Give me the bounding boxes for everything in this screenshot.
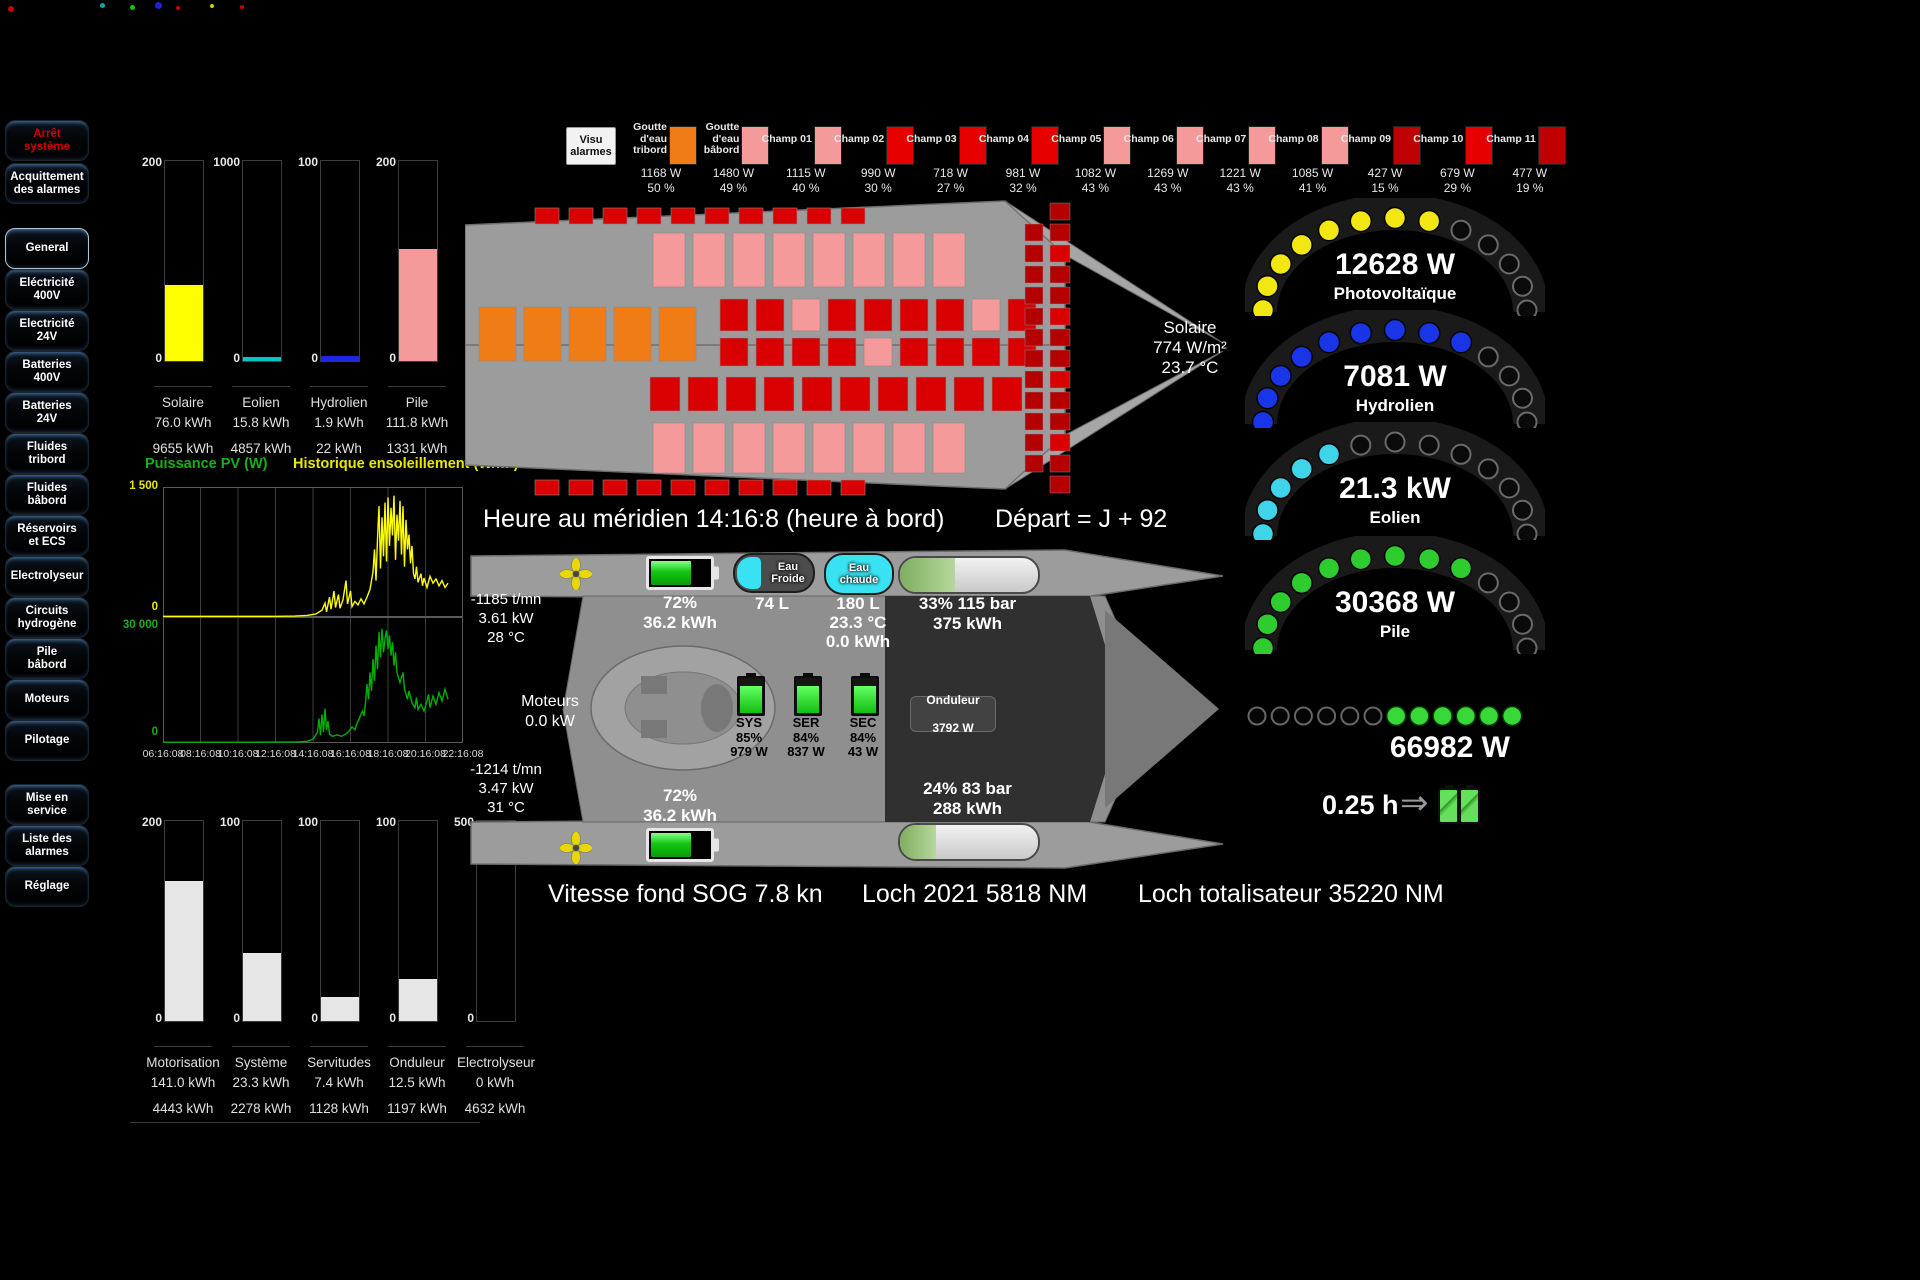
sidebar-item-electricite-400v[interactable]: Eléctricité 400V xyxy=(5,269,89,310)
bar-day-value: 76.0 kWh xyxy=(145,415,221,430)
h2-bottom-energy: 288 kWh xyxy=(905,799,1030,819)
bar-zero-label: 0 xyxy=(454,1011,474,1025)
bar-zero-label: 0 xyxy=(142,1011,162,1025)
dc-battery-text-ser: SER 84% 837 W xyxy=(776,716,836,760)
pv-field-label: Champ 02 xyxy=(824,134,884,146)
cold-water-tank: Eau Froide xyxy=(733,553,815,593)
loch-text: Loch 2021 5818 NM xyxy=(862,880,1087,909)
pv-field-color-swatch xyxy=(814,126,842,165)
solaire-irradiance: 774 W/m² xyxy=(1120,338,1260,358)
pv-field-pct: 43 % xyxy=(1198,181,1282,195)
total-power-value: 66982 W xyxy=(1360,731,1510,765)
dc-battery-text-sys: SYS 85% 979 W xyxy=(719,716,779,760)
motor-top-power: 3.61 kW xyxy=(470,609,542,628)
pv-ymin-label: 0 xyxy=(138,726,158,738)
bar-name-label: Hydrolien xyxy=(301,395,377,410)
bar-fill-système xyxy=(243,953,281,1021)
pv-field-pct: 30 % xyxy=(836,181,920,195)
pv-field-pct: 27 % xyxy=(909,181,993,195)
dc-battery-sys xyxy=(737,676,765,716)
h2-top-energy: 375 kWh xyxy=(905,614,1030,634)
screen-artifact xyxy=(130,5,135,10)
pv-field-watts: 1168 W xyxy=(619,166,703,180)
sidebar-item-circuits-hydrogene[interactable]: Circuits hydrogène xyxy=(5,597,89,638)
pv-field-watts: 1221 W xyxy=(1198,166,1282,180)
pv-field-pct: 19 % xyxy=(1488,181,1572,195)
sun-irradiance-line-chart xyxy=(163,487,463,617)
pv-field-color-swatch xyxy=(1465,126,1493,165)
bar-day-value: 12.5 kWh xyxy=(379,1075,455,1090)
moteurs-power: 0.0 kW xyxy=(510,712,590,732)
pv-field-pct: 40 % xyxy=(764,181,848,195)
pv-field-label: Champ 01 xyxy=(752,134,812,146)
bar-name-label: Système xyxy=(223,1055,299,1070)
charge-battery-icon xyxy=(1438,788,1459,824)
bar-motorisation xyxy=(164,820,204,1022)
gauge-label-photovoltaique: Photovoltaïque xyxy=(1245,284,1545,304)
bar-zero-label: 0 xyxy=(298,1011,318,1025)
pv-field-label: Goutte d'eau tribord xyxy=(607,122,667,157)
pv-field-watts: 990 W xyxy=(836,166,920,180)
sidebar-item-acquittement-alarmes[interactable]: Acquittement des alarmes xyxy=(5,163,89,204)
sidebar-item-batteries-24v[interactable]: Batteries 24V xyxy=(5,392,89,433)
loch-total-text: Loch totalisateur 35220 NM xyxy=(1138,880,1444,909)
total-power-segments xyxy=(1245,702,1527,730)
bar-scale-label: 100 xyxy=(284,155,318,169)
battery-bottom-pct: 72% xyxy=(640,786,720,806)
cold-water-volume: 74 L xyxy=(732,594,812,614)
gauge-label-hydrolien: Hydrolien xyxy=(1245,396,1545,416)
sidebar-item-pilotage[interactable]: Pilotage xyxy=(5,720,89,761)
bar-scale-label: 200 xyxy=(128,815,162,829)
bar-name-label: Onduleur xyxy=(379,1055,455,1070)
pv-field-item-9[interactable]: Champ 071221 W43 % xyxy=(1204,120,1276,198)
pv-field-watts: 1269 W xyxy=(1126,166,1210,180)
pv-field-watts: 1082 W xyxy=(1053,166,1137,180)
pv-ymax-label: 30 000 xyxy=(98,619,158,631)
bar-total-value: 22 kWh xyxy=(301,441,377,456)
bar-système xyxy=(242,820,282,1022)
bar-zero-label: 0 xyxy=(220,1011,240,1025)
onduleur-watts: 3792 W xyxy=(932,721,973,735)
bar-servitudes xyxy=(320,820,360,1022)
pv-field-color-swatch xyxy=(959,126,987,165)
bar-total-value: 9655 kWh xyxy=(145,441,221,456)
bar-total-value: 1197 kWh xyxy=(379,1101,455,1116)
hot-water-energy: 0.0 kWh xyxy=(818,632,898,651)
pv-field-pct: 29 % xyxy=(1415,181,1499,195)
bar-day-value: 141.0 kWh xyxy=(145,1075,221,1090)
pv-field-item-5[interactable]: Champ 03718 W27 % xyxy=(915,120,987,198)
bar-scale-label: 200 xyxy=(362,155,396,169)
solaire-title: Solaire xyxy=(1120,318,1260,338)
battery-top-pct: 72% xyxy=(640,593,720,613)
production-bar-chart: 2000Solaire76.0 kWh9655 kWh10000Eolien15… xyxy=(128,155,488,455)
pv-field-item-7[interactable]: Champ 051082 W43 % xyxy=(1059,120,1131,198)
bar-scale-label: 200 xyxy=(128,155,162,169)
bar-fill-pile xyxy=(399,249,437,361)
meridian-time-text: Heure au méridien 14:16:8 (heure à bord) xyxy=(483,505,944,534)
screen-artifact xyxy=(155,2,162,9)
h2-top-pressure: 33% 115 bar xyxy=(905,594,1030,614)
gauge-label-pile: Pile xyxy=(1245,622,1545,642)
bar-total-value: 2278 kWh xyxy=(223,1101,299,1116)
h2-tank-top xyxy=(898,556,1040,594)
sidebar-item-reservoirs-ecs[interactable]: Réservoirs et ECS xyxy=(5,515,89,556)
sidebar-item-moteurs[interactable]: Moteurs xyxy=(5,679,89,720)
pv-field-label: Champ 11 xyxy=(1476,134,1536,146)
gauge-value-pile: 30368 W xyxy=(1245,586,1545,620)
motor-top-rpm: -1185 t/mn xyxy=(470,590,542,609)
pv-field-color-swatch xyxy=(1248,126,1276,165)
pv-field-watts: 477 W xyxy=(1488,166,1572,180)
propeller-icon xyxy=(560,558,592,590)
screen-artifact xyxy=(210,4,214,8)
gauge-label-eolien: Eolien xyxy=(1245,508,1545,528)
bar-zero-label: 0 xyxy=(220,351,240,365)
screen-artifact xyxy=(176,6,180,10)
bar-onduleur xyxy=(398,820,438,1022)
dc-battery-text-sec: SEC 84% 43 W xyxy=(833,716,893,760)
pv-field-watts: 1480 W xyxy=(691,166,775,180)
bar-total-value: 1331 kWh xyxy=(379,441,455,456)
arrow-right-icon: ⇒ xyxy=(1400,783,1429,823)
pv-field-watts: 1085 W xyxy=(1271,166,1355,180)
h2-bottom-pressure: 24% 83 bar xyxy=(905,779,1030,799)
pv-field-item-2[interactable]: Goutte d'eau bâbord1480 W49 % xyxy=(697,120,769,198)
bar-fill-solaire xyxy=(165,285,203,361)
bar-name-label: Servitudes xyxy=(301,1055,377,1070)
sidebar-item-arret-systeme[interactable]: Arrêt système xyxy=(5,120,89,161)
bar-name-label: Electrolyseur xyxy=(457,1055,533,1070)
divider xyxy=(388,386,446,387)
motor-bottom-temp: 31 °C xyxy=(470,798,542,817)
bar-total-value: 4443 kWh xyxy=(145,1101,221,1116)
bar-scale-label: 100 xyxy=(206,815,240,829)
pv-field-item-3[interactable]: Champ 011115 W40 % xyxy=(770,120,842,198)
pv-field-label: Champ 03 xyxy=(897,134,957,146)
pv-field-watts: 679 W xyxy=(1415,166,1499,180)
bar-day-value: 0 kWh xyxy=(457,1075,533,1090)
divider xyxy=(310,1046,368,1047)
pv-field-label: Goutte d'eau bâbord xyxy=(679,122,739,157)
divider xyxy=(130,1122,480,1123)
motor-top-temp: 28 °C xyxy=(470,628,542,647)
motor-bottom-rpm: -1214 t/mn xyxy=(470,760,542,779)
sun-ymin-label: 0 xyxy=(138,601,158,613)
battery-top-energy: 36.2 kWh xyxy=(640,613,720,633)
bar-name-label: Motorisation xyxy=(145,1055,221,1070)
bar-name-label: Pile xyxy=(379,395,455,410)
scada-screen: Arrêt systèmeAcquittement des alarmesGen… xyxy=(0,0,1920,1280)
battery-top-icon xyxy=(646,556,714,590)
pv-field-pct: 43 % xyxy=(1053,181,1137,195)
pv-field-watts: 718 W xyxy=(909,166,993,180)
dc-battery-fill xyxy=(854,686,876,713)
dc-battery-fill xyxy=(797,686,819,713)
pv-field-color-swatch xyxy=(1538,126,1566,165)
pv-field-color-swatch xyxy=(1393,126,1421,165)
sidebar-item-electricite-24v[interactable]: Electricité 24V xyxy=(5,310,89,351)
pv-field-pct: 41 % xyxy=(1271,181,1355,195)
divider xyxy=(232,386,290,387)
pv-field-item-8[interactable]: Champ 061269 W43 % xyxy=(1132,120,1204,198)
pv-field-pct: 50 % xyxy=(619,181,703,195)
hot-water-label: Eau chaude xyxy=(826,562,892,586)
bar-eolien xyxy=(242,160,282,362)
sidebar-item-fluides-babord[interactable]: Fluides bâbord xyxy=(5,474,89,515)
pv-field-item-4[interactable]: Champ 02990 W30 % xyxy=(842,120,914,198)
pv-field-pct: 32 % xyxy=(981,181,1065,195)
bar-scale-label: 100 xyxy=(284,815,318,829)
pv-field-label: Champ 05 xyxy=(1041,134,1101,146)
screen-artifact xyxy=(100,3,105,8)
pv-field-label: Champ 04 xyxy=(969,134,1029,146)
h2-tank-bottom-level xyxy=(900,825,936,859)
moteurs-label: Moteurs xyxy=(510,692,590,712)
divider xyxy=(388,1046,446,1047)
pv-field-item-11[interactable]: Champ 09427 W15 % xyxy=(1349,120,1421,198)
bar-scale-label: 100 xyxy=(362,815,396,829)
battery-bottom-energy: 36.2 kWh xyxy=(640,806,720,826)
cold-water-label: Eau Froide xyxy=(735,561,827,585)
pv-power-line-chart xyxy=(163,617,463,743)
pv-field-watts: 427 W xyxy=(1343,166,1427,180)
bar-day-value: 7.4 kWh xyxy=(301,1075,377,1090)
onduleur-label: Onduleur xyxy=(926,693,979,707)
pv-field-color-swatch xyxy=(1103,126,1131,165)
pv-field-item-10[interactable]: Champ 081085 W41 % xyxy=(1277,120,1349,198)
bar-day-value: 1.9 kWh xyxy=(301,415,377,430)
pv-field-color-swatch xyxy=(1031,126,1059,165)
bar-fill-eolien xyxy=(243,357,281,361)
bar-name-label: Solaire xyxy=(145,395,221,410)
solaire-temp: 23.7 °C xyxy=(1120,358,1260,378)
bar-zero-label: 0 xyxy=(376,1011,396,1025)
sun-ymax-label: 1 500 xyxy=(112,480,158,492)
sidebar-item-general[interactable]: General xyxy=(5,228,89,269)
pv-field-pct: 49 % xyxy=(691,181,775,195)
boat-deck-view xyxy=(465,195,1225,505)
onduleur-box: Onduleur 3792 W xyxy=(910,696,996,732)
pv-field-label: Champ 10 xyxy=(1403,134,1463,146)
sidebar-item-batteries-400v[interactable]: Batteries 400V xyxy=(5,351,89,392)
bar-name-label: Eolien xyxy=(223,395,299,410)
screen-artifact xyxy=(240,5,244,9)
dc-battery-fill xyxy=(740,686,762,713)
divider xyxy=(154,1046,212,1047)
bar-day-value: 23.3 kWh xyxy=(223,1075,299,1090)
motor-bottom-power: 3.47 kW xyxy=(470,779,542,798)
divider xyxy=(154,386,212,387)
bar-fill-onduleur xyxy=(399,979,437,1021)
dc-battery-ser xyxy=(794,676,822,716)
sidebar-item-electrolyseur[interactable]: Electrolyseur xyxy=(5,556,89,597)
bar-pile xyxy=(398,160,438,362)
pv-field-label: Champ 09 xyxy=(1331,134,1391,146)
divider xyxy=(232,1046,290,1047)
pv-field-watts: 1115 W xyxy=(764,166,848,180)
hot-water-temp: 23.3 °C xyxy=(818,613,898,632)
divider xyxy=(466,1046,524,1047)
sidebar-item-pile-babord[interactable]: Pile bâbord xyxy=(5,638,89,679)
pv-field-item-12[interactable]: Champ 10679 W29 % xyxy=(1421,120,1493,198)
bar-fill-servitudes xyxy=(321,997,359,1021)
bar-zero-label: 0 xyxy=(142,351,162,365)
bar-day-value: 111.8 kWh xyxy=(379,415,455,430)
sog-text: Vitesse fond SOG 7.8 kn xyxy=(548,880,823,909)
sidebar-item-fluides-tribord[interactable]: Fluides tribord xyxy=(5,433,89,474)
pv-field-pct: 15 % xyxy=(1343,181,1427,195)
bar-zero-label: 0 xyxy=(376,351,396,365)
h2-tank-bottom xyxy=(898,823,1040,861)
pv-field-color-swatch xyxy=(1321,126,1349,165)
divider xyxy=(310,386,368,387)
hot-water-volume: 180 L xyxy=(818,594,898,613)
depart-day-counter: Départ = J + 92 xyxy=(995,505,1167,534)
pv-field-watts: 981 W xyxy=(981,166,1065,180)
autonomy-value: 0.25 h xyxy=(1322,790,1399,821)
bar-fill-hydrolien xyxy=(321,356,359,361)
bar-scale-label: 1000 xyxy=(206,155,240,169)
pv-power-chart-title: Puissance PV (W) xyxy=(145,456,267,472)
gauge-value-eolien: 21.3 kW xyxy=(1245,472,1545,506)
h2-tank-top-level xyxy=(900,558,955,592)
dc-battery-sec xyxy=(851,676,879,716)
bar-total-value: 4632 kWh xyxy=(457,1101,533,1116)
pv-field-label: Champ 08 xyxy=(1259,134,1319,146)
pv-field-item-13[interactable]: Champ 11477 W19 % xyxy=(1494,120,1566,198)
bar-fill-motorisation xyxy=(165,881,203,1021)
gauge-value-hydrolien: 7081 W xyxy=(1245,360,1545,394)
bar-day-value: 15.8 kWh xyxy=(223,415,299,430)
sidebar-item-mise-en-service[interactable]: Mise en service xyxy=(5,784,89,825)
pv-field-item-6[interactable]: Champ 04981 W32 % xyxy=(987,120,1059,198)
bar-total-value: 1128 kWh xyxy=(301,1101,377,1116)
screen-artifact xyxy=(8,6,14,12)
pv-field-label: Champ 07 xyxy=(1186,134,1246,146)
pv-field-color-swatch xyxy=(741,126,769,165)
bar-total-value: 4857 kWh xyxy=(223,441,299,456)
pv-field-label: Champ 06 xyxy=(1114,134,1174,146)
propeller-icon xyxy=(560,832,592,864)
hot-water-tank: Eau chaude xyxy=(824,553,894,595)
charge-battery-icon xyxy=(1459,788,1480,824)
bar-hydrolien xyxy=(320,160,360,362)
battery-bottom-icon xyxy=(646,828,714,862)
sidebar-item-liste-des-alarmes[interactable]: Liste des alarmes xyxy=(5,825,89,866)
pv-field-pct: 43 % xyxy=(1126,181,1210,195)
gauge-value-photovoltaique: 12628 W xyxy=(1245,248,1545,282)
sidebar-item-reglage[interactable]: Réglage xyxy=(5,866,89,907)
pv-field-color-swatch xyxy=(886,126,914,165)
bar-solaire xyxy=(164,160,204,362)
bar-zero-label: 0 xyxy=(298,351,318,365)
pv-field-color-swatch xyxy=(1176,126,1204,165)
